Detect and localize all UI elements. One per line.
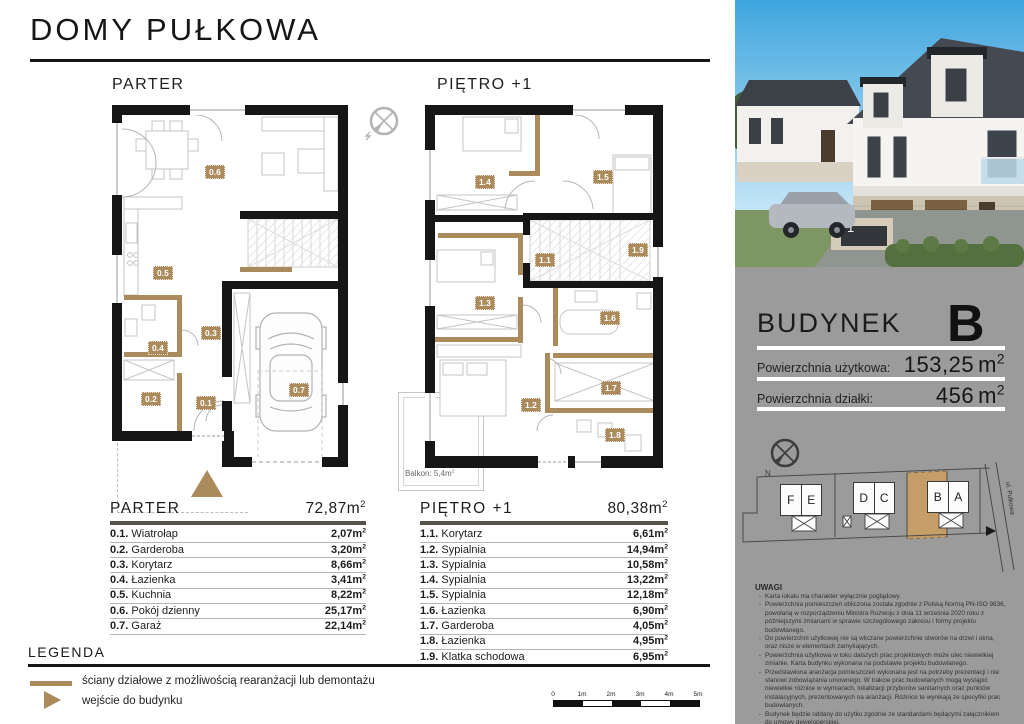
legend-title: LEGENDA [28,644,105,660]
scale-tick-label: 3m [635,691,644,698]
site-building-pair: BA [927,481,969,513]
site-building-letter: E [801,485,822,515]
room-row: 0.2. Garderoba3,20m2 [110,543,366,558]
room-row: 0.4. Łazienka3,41m2 [110,573,366,588]
parter-room-table: PARTER 72,87m2 0.1. Wiatrołap2,07m20.2. … [110,500,366,635]
room-badge: 0.6 [205,165,225,179]
uwagi-item: -Karta lokalu ma charakter wyłącznie pog… [755,593,1007,601]
room-row: 1.7. Garderoba4,05m2 [420,619,668,634]
uwagi-item: -Budynek będzie oddany do użytku zgodnie… [755,711,1007,724]
scale-segment [670,701,699,706]
site-map: ul. Pułkowa N FEDCBA [735,420,1024,585]
parter-plan-svg [112,105,348,467]
sidebar: 1 BUDYNEK B Powierzchnia użytkowa: 153,2… [735,0,1024,724]
room-row: 0.6. Pokój dzienny25,17m2 [110,604,366,619]
room-row: 1.4. Sypialnia13,22m2 [420,573,668,588]
partition-wall-swatch [30,681,72,686]
page-title: DOMY PUŁKOWA [30,12,321,48]
site-building-letter: A [948,482,969,512]
room-row: 1.9. Klatka schodowa6,95m2 [420,650,668,665]
parter-floorplan: 0.10.20.30.40.50.60.7 [112,105,348,467]
scale-segment [583,701,612,706]
uwagi-item: -Powierzchnia pomieszczeń obliczona zost… [755,601,1007,635]
legend-item-entrance: wejście do budynku [82,695,182,707]
car-top-icon [256,313,326,431]
sitemap-compass-icon: N [763,434,805,478]
room-row: 1.2. Sypialnia14,94m2 [420,543,668,558]
room-badge: 0.2 [141,392,161,406]
room-badge: 1.7 [601,381,621,395]
plot-area-row: Powierzchnia działki: 456m2 [757,383,1005,409]
building-panel-title: BUDYNEK [757,308,902,339]
pietro-label: PIĘTRO +1 [437,76,533,94]
building-letter: B [947,294,985,354]
site-building-letter: B [928,482,948,512]
parter-rows: 0.1. Wiatrołap2,07m20.2. Garderoba3,20m2… [110,528,366,635]
room-badge: 1.1 [535,253,555,267]
room-row: 0.3. Korytarz8,66m2 [110,558,366,573]
site-building-letter: F [781,485,801,515]
parter-table-header: PARTER 72,87m2 [110,500,366,518]
legend-rule [28,664,710,667]
property-card-page: DOMY PUŁKOWA PARTER PIĘTRO +1 [0,0,1024,724]
table-header-rule [110,521,366,525]
plot-area-label: Powierzchnia działki: [757,392,873,406]
street-label: ul. Pułkowa [1004,481,1016,515]
room-row: 1.1. Korytarz6,61m2 [420,528,668,543]
pietro-plan-svg [425,105,663,468]
panel-rule [757,346,1005,350]
room-row: 1.6. Łazienka6,90m2 [420,604,668,619]
scale-segment [612,701,641,706]
legend-item-partition: ściany działowe z możliwością rearanżacj… [82,675,375,687]
room-row: 1.8. Łazienka4,95m2 [420,635,668,650]
uwagi-item: -Do powierzchni użytkowej nie są wliczan… [755,635,1007,652]
pietro-room-table: PIĘTRO +1 80,38m2 1.1. Korytarz6,61m21.2… [420,500,668,665]
room-badge: 1.9 [628,243,648,257]
room-badge: 1.6 [600,311,620,325]
scale-segment [641,701,670,706]
usable-area-label: Powierzchnia użytkowa: [757,361,890,375]
room-badge: 1.2 [521,398,541,412]
uwagi-item: -Przedstawiona aranżacja pomieszczeń wyk… [755,669,1007,711]
site-building-pair: DC [853,482,895,514]
site-building-pair: FE [780,484,822,516]
room-badge: 0.1 [196,396,216,410]
uwagi-title: UWAGI [755,583,1007,592]
room-row: 1.5. Sypialnia12,18m2 [420,589,668,604]
site-building-letter: C [874,483,895,513]
room-badge: 0.7 [289,383,309,397]
panel-rule [757,407,1005,411]
room-badge: 1.4 [475,175,495,189]
room-row: 1.3. Sypialnia10,58m2 [420,558,668,573]
scale-segment [554,701,583,706]
title-rule [30,59,710,62]
pietro-table-header: PIĘTRO +1 80,38m2 [420,500,668,518]
plot-area-value: 456m2 [936,383,1005,409]
parter-label: PARTER [112,76,184,94]
scale-tick-label: 1m [577,691,586,698]
entrance-arrow-swatch [44,691,61,709]
room-row: 0.1. Wiatrołap2,07m2 [110,528,366,543]
scale-tick-label: 5m [693,691,702,698]
room-row: 0.5. Kuchnia8,22m2 [110,589,366,604]
usable-area-row: Powierzchnia użytkowa: 153,25m2 [757,352,1005,378]
uwagi-list: -Karta lokalu ma charakter wyłącznie pog… [755,593,1007,724]
room-row: 0.7. Garaż22,14m2 [110,619,366,634]
room-badge: 1.3 [475,296,495,310]
room-badge: 0.5 [153,266,173,280]
compass-n-label: N [765,469,771,478]
pietro-floorplan: 1.11.21.31.41.51.61.71.81.9 [425,105,663,468]
room-badge: 0.4 [148,341,168,355]
table-header-rule [420,521,668,525]
building-render-photo: 1 [735,0,1024,267]
scale-tick-label: 0 [551,691,555,698]
scale-track [553,700,700,707]
panel-rule [757,377,1005,381]
room-badge: 1.5 [593,170,613,184]
scale-tick-label: 2m [606,691,615,698]
entrance-arrow [191,470,223,497]
north-compass-icon [362,102,404,146]
scale-tick-label: 4m [664,691,673,698]
scale-bar: 01m2m3m4m5m [553,691,700,711]
room-badge: 0.3 [201,326,221,340]
site-building-letter: D [854,483,874,513]
pietro-rows: 1.1. Korytarz6,61m21.2. Sypialnia14,94m2… [420,528,668,666]
uwagi-section: UWAGI -Karta lokalu ma charakter wyłączn… [755,583,1007,724]
usable-area-value: 153,25m2 [904,352,1005,378]
parter-stairs [248,219,338,267]
uwagi-item: -Powierzchnia użytkowa w toku dalszych p… [755,652,1007,669]
street-entrance-arrow [986,526,996,536]
room-badge: 1.8 [605,428,625,442]
